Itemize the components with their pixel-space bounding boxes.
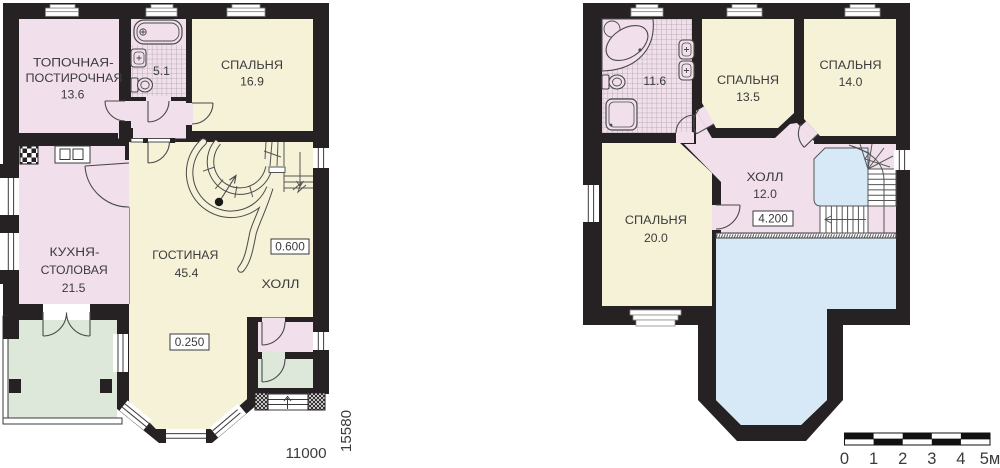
- svg-text:ГОСТИНАЯ: ГОСТИНАЯ: [152, 248, 218, 262]
- svg-text:4.200: 4.200: [758, 212, 788, 226]
- svg-text:16.9: 16.9: [240, 75, 264, 89]
- svg-text:ХОЛЛ: ХОЛЛ: [262, 277, 300, 291]
- svg-text:0.600: 0.600: [275, 240, 305, 254]
- svg-text:12.0: 12.0: [753, 187, 777, 201]
- svg-text:ХОЛЛ: ХОЛЛ: [747, 170, 784, 184]
- svg-text:20.0: 20.0: [644, 231, 668, 245]
- svg-text:21.5: 21.5: [62, 281, 86, 295]
- svg-text:14.0: 14.0: [839, 75, 863, 89]
- svg-text:СТОЛОВАЯ: СТОЛОВАЯ: [41, 263, 108, 277]
- svg-text:11000: 11000: [285, 445, 326, 462]
- svg-text:ПОСТИРОЧНАЯ: ПОСТИРОЧНАЯ: [26, 71, 123, 85]
- svg-text:СПАЛЬНЯ: СПАЛЬНЯ: [221, 58, 283, 72]
- svg-text:2: 2: [898, 450, 907, 468]
- svg-text:45.4: 45.4: [175, 266, 199, 280]
- svg-text:5м: 5м: [980, 450, 1000, 468]
- svg-text:11.6: 11.6: [643, 74, 666, 88]
- svg-text:СПАЛЬНЯ: СПАЛЬНЯ: [625, 213, 687, 227]
- svg-text:13.6: 13.6: [61, 88, 85, 102]
- svg-text:ТОПОЧНАЯ-: ТОПОЧНАЯ-: [33, 56, 114, 70]
- svg-text:0: 0: [840, 450, 849, 468]
- svg-text:15580: 15580: [338, 410, 355, 452]
- svg-text:3: 3: [927, 450, 936, 468]
- svg-text:5.1: 5.1: [153, 64, 170, 78]
- svg-text:13.5: 13.5: [736, 90, 760, 104]
- svg-text:СПАЛЬНЯ: СПАЛЬНЯ: [820, 58, 882, 72]
- svg-text:КУХНЯ-: КУХНЯ-: [50, 245, 100, 259]
- svg-text:1: 1: [869, 450, 878, 468]
- svg-text:0.250: 0.250: [175, 335, 205, 349]
- svg-text:4: 4: [956, 450, 965, 468]
- svg-text:СПАЛЬНЯ: СПАЛЬНЯ: [717, 73, 779, 87]
